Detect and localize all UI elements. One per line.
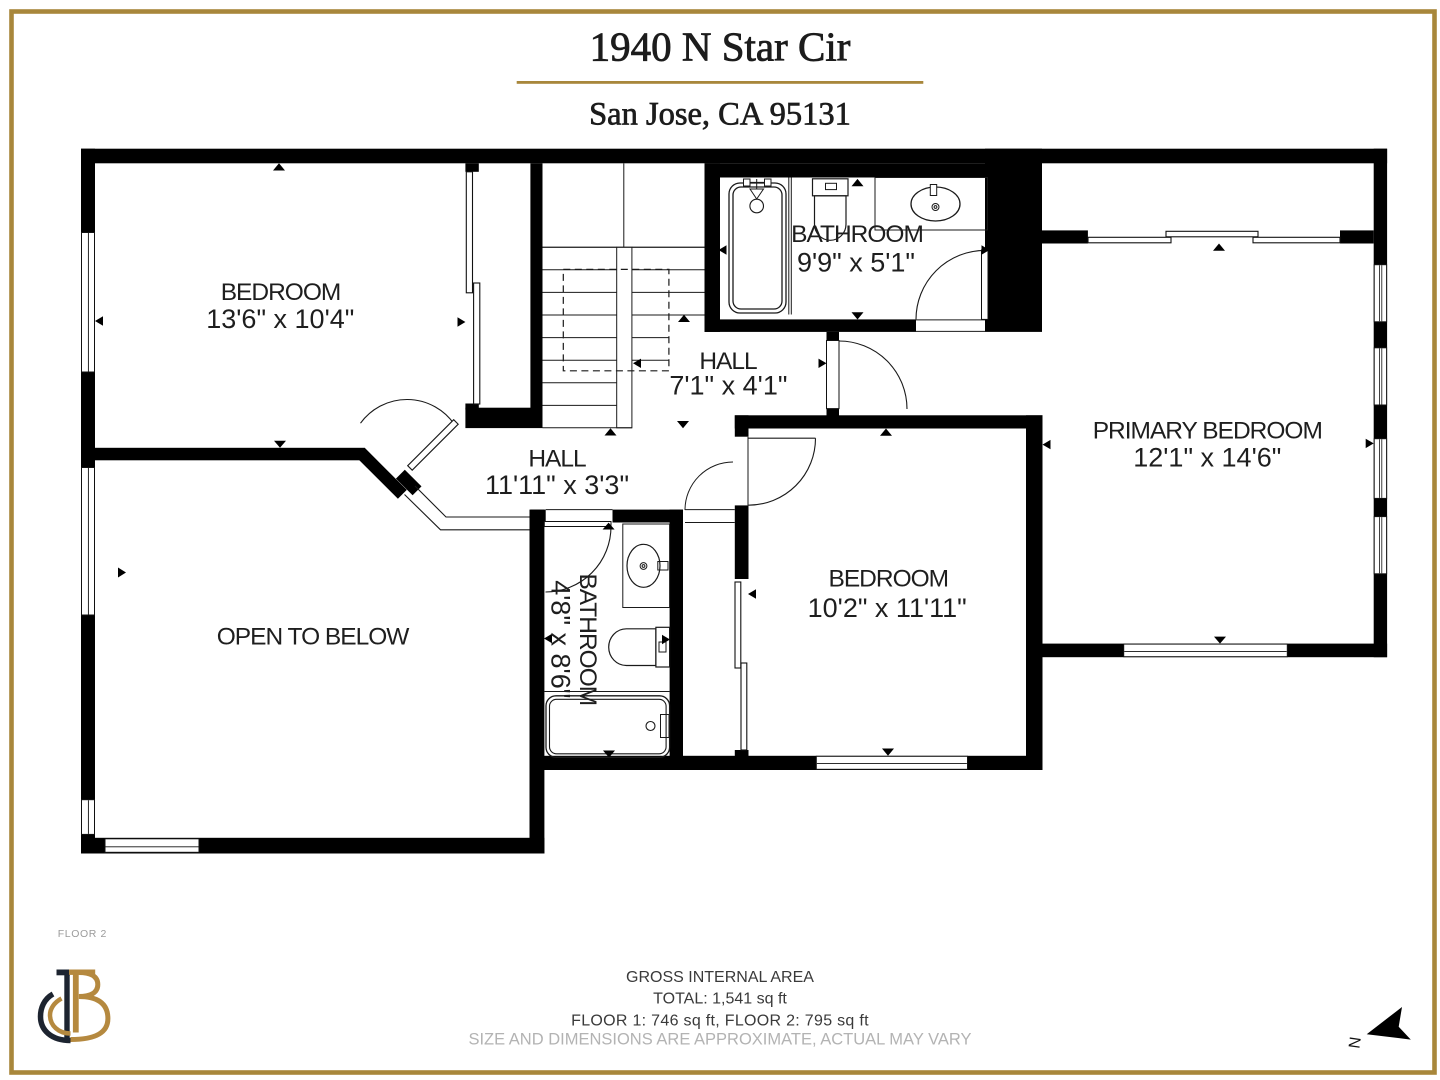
svg-text:FLOOR 2: FLOOR 2 [58, 928, 107, 940]
svg-text:HALL: HALL [528, 446, 586, 473]
svg-text:BEDROOM: BEDROOM [221, 279, 341, 306]
svg-text:12'1" x 14'6": 12'1" x 14'6" [1133, 442, 1281, 472]
svg-text:7'1" x 4'1": 7'1" x 4'1" [669, 370, 787, 400]
svg-text:SIZE AND DIMENSIONS ARE APPROX: SIZE AND DIMENSIONS ARE APPROXIMATE, ACT… [468, 1031, 971, 1049]
svg-text:10'2" x 11'11": 10'2" x 11'11" [808, 593, 967, 623]
svg-text:9'9" x 5'1": 9'9" x 5'1" [797, 248, 915, 278]
svg-text:GROSS INTERNAL AREA: GROSS INTERNAL AREA [626, 969, 814, 986]
svg-text:OPEN TO BELOW: OPEN TO BELOW [217, 624, 411, 651]
svg-text:13'6" x 10'4": 13'6" x 10'4" [206, 304, 354, 334]
svg-text:N: N [1344, 1036, 1362, 1050]
svg-text:San Jose, CA 95131: San Jose, CA 95131 [589, 97, 851, 133]
svg-text:TOTAL: 1,541 sq ft: TOTAL: 1,541 sq ft [653, 991, 787, 1008]
svg-text:11'11" x 3'3": 11'11" x 3'3" [485, 470, 629, 500]
svg-text:BATHROOM: BATHROOM [791, 221, 923, 248]
svg-text:BATHROOM: BATHROOM [574, 573, 601, 705]
svg-text:4'8" x 8'6": 4'8" x 8'6" [546, 580, 576, 698]
svg-text:BEDROOM: BEDROOM [829, 566, 949, 593]
svg-text:PRIMARY BEDROOM: PRIMARY BEDROOM [1093, 417, 1322, 444]
svg-text:FLOOR 1: 746 sq ft, FLOOR 2: 7: FLOOR 1: 746 sq ft, FLOOR 2: 795 sq ft [571, 1013, 869, 1030]
svg-text:1940 N Star Cir: 1940 N Star Cir [590, 24, 851, 70]
